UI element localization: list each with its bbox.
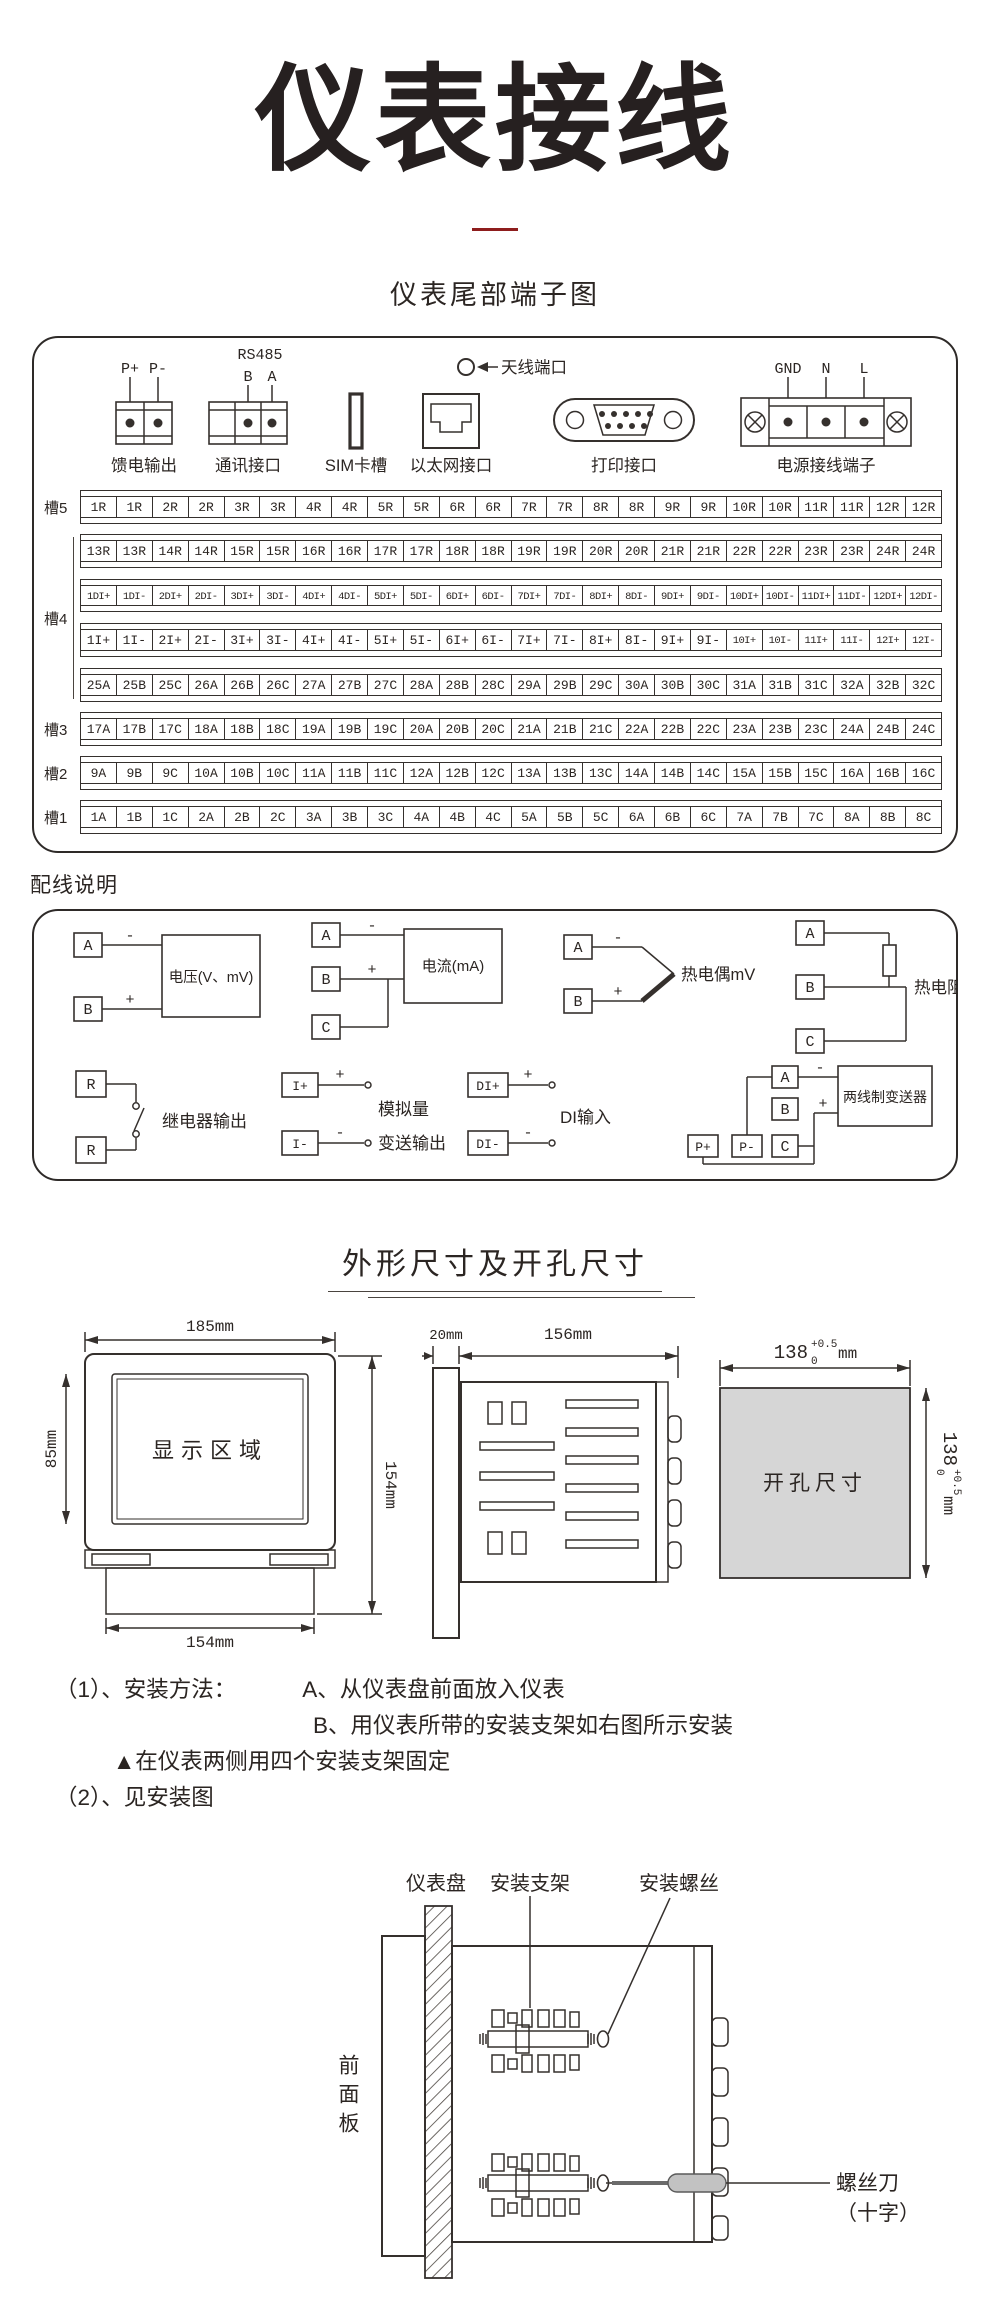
- terminal-cell: 32A: [834, 675, 870, 695]
- terminal-b: B: [780, 1102, 789, 1119]
- terminal-cell: 12C: [476, 763, 512, 783]
- dim-cutout-base: 138: [774, 1342, 808, 1364]
- terminal-cell: 8C: [906, 807, 941, 827]
- wiring-notes-title: 配线说明: [30, 869, 990, 899]
- terminal-cell: 23R: [834, 541, 870, 561]
- terminal-cell: 1R: [81, 497, 117, 517]
- thermocouple-label: 热电偶mV: [681, 965, 755, 984]
- slot-label: 槽1: [44, 807, 80, 828]
- terminal-cell: 8A: [834, 807, 870, 827]
- dim-panel-thickness: 20mm: [429, 1328, 463, 1344]
- terminal-cell: 9I-: [691, 630, 727, 650]
- current-wiring-diagram: A B C - + 电流(mA): [302, 919, 514, 1053]
- terminal-cell: 1C: [153, 807, 189, 827]
- terminal-cell: 3R: [225, 497, 261, 517]
- terminal-cell: 7DI-: [547, 586, 583, 605]
- rtd-wiring-diagram: A B C 热电阻: [786, 915, 958, 1069]
- minus-sign: -: [125, 928, 134, 945]
- front-bezel: [382, 1936, 425, 2256]
- thermocouple-wiring-diagram: A B - + 热电偶mV: [554, 927, 766, 1041]
- terminal-cell: 19C: [368, 719, 404, 739]
- terminal-cell: 19R: [547, 541, 583, 561]
- terminal-strip: 1R1R2R2R3R3R4R4R5R5R6R6R7R7R8R8R9R9R10R1…: [80, 490, 942, 524]
- screwdriver-handle: [668, 2174, 726, 2192]
- cutout-label: 开孔尺寸: [763, 1472, 867, 1495]
- terminal-cell: 30A: [619, 675, 655, 695]
- terminal-cell: 6B: [655, 807, 691, 827]
- switch-contact-icon: [133, 1103, 139, 1109]
- plus-sign: +: [125, 992, 134, 1009]
- terminal-cell: 4DI-: [332, 586, 368, 605]
- printer-label: 打印接口: [591, 456, 657, 475]
- terminal-cell: 31B: [763, 675, 799, 695]
- dim-width: 185mm: [186, 1318, 234, 1336]
- sim-slot-connector: SIM卡槽: [325, 394, 387, 475]
- terminal-cell: 29B: [547, 675, 583, 695]
- terminal-cell: 31A: [727, 675, 763, 695]
- terminal-cell: 6I-: [476, 630, 512, 650]
- terminal-diagram-subtitle: 仪表尾部端子图: [0, 273, 990, 312]
- terminal-cell: 5A: [512, 807, 548, 827]
- panel-hatch: [425, 1906, 452, 2278]
- terminal-cell: 6A: [619, 807, 655, 827]
- terminal-cell: 28B: [440, 675, 476, 695]
- terminal-cell: 1A: [81, 807, 117, 827]
- slot-label: 槽4: [44, 608, 80, 629]
- terminal-cell: 9A: [81, 763, 117, 783]
- minus-sign: -: [613, 930, 622, 947]
- sim-slot-label: SIM卡槽: [325, 456, 387, 475]
- terminal-cell: 27B: [332, 675, 368, 695]
- terminal-c: C: [805, 1034, 814, 1051]
- terminal-slot: 槽317A17B17C18A18B18C19A19B19C20A20B20C21…: [34, 707, 956, 751]
- terminal-cell: 20C: [476, 719, 512, 739]
- dim-cutout-base-v: 138: [938, 1432, 960, 1466]
- terminal-cell: 21B: [547, 719, 583, 739]
- terminal-cell: 23R: [799, 541, 835, 561]
- pin-label: B: [243, 369, 252, 386]
- slot-rows: 9A9B9C10A10B10C11A11B11C12A12B12C13A13B1…: [80, 756, 942, 790]
- terminal-cell: 22C: [691, 719, 727, 739]
- terminal-cell: 19A: [296, 719, 332, 739]
- terminal-cell: 26A: [189, 675, 225, 695]
- terminal-b: B: [573, 994, 582, 1011]
- terminal-cell: 15A: [727, 763, 763, 783]
- terminal-cell: 9B: [117, 763, 153, 783]
- terminal-cell: 8R: [583, 497, 619, 517]
- terminal-cell: 24A: [834, 719, 870, 739]
- install-line-4: （2）、见安装图: [55, 1780, 990, 1816]
- terminal-cell: 20A: [404, 719, 440, 739]
- terminal-cell: 15C: [799, 763, 835, 783]
- terminal-cell: 5C: [583, 807, 619, 827]
- voltage-label: 电压(V、mV): [169, 969, 254, 986]
- terminal-di-plus: DI+: [476, 1079, 500, 1094]
- terminal-cell: 17B: [117, 719, 153, 739]
- bracket-label: 安装支架: [490, 1872, 570, 1895]
- power-label: 电源接线端子: [777, 456, 876, 475]
- slot-rows: 13R13R14R14R15R15R16R16R17R17R18R18R19R1…: [80, 534, 942, 702]
- plus-sign: +: [335, 1067, 344, 1084]
- terminal-cell: 14R: [189, 541, 225, 561]
- terminal-cell: 3DI-: [260, 586, 296, 605]
- pin-label: P+: [121, 361, 139, 378]
- terminal-cell: 4C: [476, 807, 512, 827]
- terminal-b: B: [83, 1002, 92, 1019]
- terminal-cell: 18R: [476, 541, 512, 561]
- terminal-cell: 7B: [763, 807, 799, 827]
- terminal-cell: 3B: [332, 807, 368, 827]
- transmitter-wiring-diagram: A B C P+ P- 两线制变送器 - +: [622, 1061, 940, 1175]
- transmitter-label: 两线制变送器: [843, 1089, 927, 1105]
- panel-label: 仪表盘: [406, 1872, 466, 1895]
- terminal-cell: 10R: [763, 497, 799, 517]
- terminal-cell: 7R: [512, 497, 548, 517]
- terminal-cell: 5I-: [404, 630, 440, 650]
- terminal-cell: 16R: [332, 541, 368, 561]
- terminal-strip: 1A1B1C2A2B2C3A3B3C4A4B4C5A5B5C6A6B6C7A7B…: [80, 800, 942, 834]
- terminal-cell: 30C: [691, 675, 727, 695]
- terminal-cell: 13A: [512, 763, 548, 783]
- wiring-notes-box: A B - + 电压(V、mV) A B C - + 电流(mA) A B - …: [32, 909, 958, 1181]
- terminal-cell: 5R: [404, 497, 440, 517]
- terminal-cell: 12DI+: [870, 586, 906, 605]
- screwdriver-label: 螺丝刀: [836, 2172, 899, 2195]
- terminal-cell: 2B: [225, 807, 261, 827]
- plus-sign: +: [367, 962, 376, 979]
- terminal-cell: 8B: [870, 807, 906, 827]
- terminal-cell: 29A: [512, 675, 548, 695]
- switch-blade-icon: [134, 1108, 144, 1131]
- terminal-diagram-box: P+ P- 馈电输出 RS485 B A 通讯接口 SIM卡槽: [32, 336, 958, 853]
- terminal-cell: 32B: [870, 675, 906, 695]
- terminal-cell: 8R: [619, 497, 655, 517]
- terminal-a: A: [573, 940, 582, 957]
- terminal-cell: 25A: [81, 675, 117, 695]
- terminal-cell: 10B: [225, 763, 261, 783]
- terminal-cell: 17R: [404, 541, 440, 561]
- pin-label: A: [267, 369, 276, 386]
- rear-connectors-diagram: P+ P- 馈电输出 RS485 B A 通讯接口 SIM卡槽: [34, 342, 960, 480]
- terminal-i-plus: I+: [292, 1079, 308, 1094]
- terminal-cell: 6I+: [440, 630, 476, 650]
- terminal-cell: 11C: [368, 763, 404, 783]
- minus-sign: -: [523, 1125, 532, 1142]
- plus-sign: +: [613, 984, 622, 1001]
- install-line-2: B、用仪表所带的安装支架如右图所示安装: [313, 1708, 990, 1744]
- page-title: 仪表接线: [0, 26, 990, 194]
- terminal-cell: 12R: [870, 497, 906, 517]
- terminal-cell: 28C: [476, 675, 512, 695]
- terminal-cell: 10C: [260, 763, 296, 783]
- rs485-title: RS485: [237, 347, 282, 364]
- terminal-cell: 10I-: [763, 630, 799, 650]
- terminal-cell: 11I-: [834, 630, 870, 650]
- terminal-cell: 4I-: [332, 630, 368, 650]
- terminal-cell: 3I-: [260, 630, 296, 650]
- terminal-cell: 2DI-: [189, 586, 225, 605]
- terminal-p-plus: P+: [695, 1140, 711, 1155]
- terminal-cell: 6R: [440, 497, 476, 517]
- terminal-cell: 18B: [225, 719, 261, 739]
- terminal-cell: 16A: [834, 763, 870, 783]
- terminal-cell: 8I+: [583, 630, 619, 650]
- terminal-strips: 槽51R1R2R2R3R3R4R4R5R5R6R6R7R7R8R8R9R9R10…: [34, 485, 956, 839]
- dim-cutout-tol-plus-v: +0.5: [950, 1469, 962, 1495]
- terminal-di-minus: DI-: [476, 1137, 499, 1152]
- terminal-cell: 31C: [799, 675, 835, 695]
- terminal-cell: 13R: [117, 541, 153, 561]
- terminal-slot: 槽51R1R2R2R3R3R4R4R5R5R6R6R7R7R8R8R9R9R10…: [34, 485, 956, 529]
- switch-contact-icon: [133, 1131, 139, 1137]
- terminal-cell: 8DI-: [619, 586, 655, 605]
- terminal-cell: 20R: [619, 541, 655, 561]
- terminal-cell: 10DI+: [727, 586, 763, 605]
- terminal-cell: 5DI-: [404, 586, 440, 605]
- terminal-cell: 13C: [583, 763, 619, 783]
- terminal-slot: 槽11A1B1C2A2B2C3A3B3C4A4B4C5A5B5C6A6B6C7A…: [34, 795, 956, 839]
- comm-connector: RS485 B A 通讯接口: [209, 347, 287, 475]
- terminal-cell: 24B: [870, 719, 906, 739]
- terminal-cell: 1DI+: [81, 586, 117, 605]
- terminal-cell: 7R: [547, 497, 583, 517]
- terminal-cell: 10I+: [727, 630, 763, 650]
- terminal-cell: 23C: [799, 719, 835, 739]
- terminal-cell: 20B: [440, 719, 476, 739]
- front-view-drawing: 185mm 显示区域 85mm 154mm 154mm: [30, 1316, 410, 1648]
- terminal-p-minus: P-: [739, 1140, 755, 1155]
- antenna-port: 天线端口: [458, 358, 567, 377]
- cutout-drawing: 138 +0.5 0 mm 开孔尺寸 138 +0.5 0 mm: [710, 1316, 962, 1648]
- install-line3-note: ▲在仪表两侧用四个安装支架固定: [113, 1749, 450, 1774]
- terminal-cell: 2I-: [189, 630, 225, 650]
- terminal-cell: 12R: [906, 497, 941, 517]
- dim-cutout-unit-v: mm: [939, 1496, 957, 1515]
- terminal-cell: 23A: [727, 719, 763, 739]
- terminal-cell: 9I+: [655, 630, 691, 650]
- terminal-cell: 11B: [332, 763, 368, 783]
- rtd-label: 热电阻: [914, 978, 958, 997]
- terminal-cell: 15R: [225, 541, 261, 561]
- terminal-cell: 21R: [691, 541, 727, 561]
- pin-label: L: [859, 361, 868, 378]
- slot-label: 槽3: [44, 719, 80, 740]
- terminal-a: A: [805, 926, 814, 943]
- terminal-a: A: [321, 928, 330, 945]
- feed-output-label: 馈电输出: [111, 456, 177, 475]
- terminal-cell: 6DI-: [476, 586, 512, 605]
- terminal-cell: 12I-: [906, 630, 941, 650]
- terminal-cell: 30B: [655, 675, 691, 695]
- side-view-drawing: 20mm 156mm: [420, 1316, 700, 1648]
- slot-rows: 1A1B1C2A2B2C3A3B3C4A4B4C5A5B5C6A6B6C7A7B…: [80, 800, 942, 834]
- slot-rows: 1R1R2R2R3R3R4R4R5R5R6R6R7R7R8R8R9R9R10R1…: [80, 490, 942, 524]
- terminal-cell: 7DI+: [512, 586, 548, 605]
- terminal-cell: 4DI+: [296, 586, 332, 605]
- minus-sign: -: [335, 1125, 344, 1142]
- terminal-cell: 22A: [619, 719, 655, 739]
- terminal-cell: 11A: [296, 763, 332, 783]
- terminal-cell: 9R: [691, 497, 727, 517]
- terminal-slot: 槽29A9B9C10A10B10C11A11B11C12A12B12C13A13…: [34, 751, 956, 795]
- mounting-bracket: [480, 2010, 609, 2072]
- dim-depth: 156mm: [544, 1326, 592, 1344]
- terminal-cell: 7I+: [512, 630, 548, 650]
- resistor-icon: [883, 945, 896, 976]
- dimension-drawings: 185mm 显示区域 85mm 154mm 154mm 20mm 156mm: [0, 1316, 990, 1648]
- minus-sign: -: [367, 919, 376, 935]
- install-instructions: （1）、安装方法：A、从仪表盘前面放入仪表 B、用仪表所带的安装支架如右图所示安…: [55, 1672, 990, 1816]
- terminal-cell: 23B: [763, 719, 799, 739]
- terminal-strip: 17A17B17C18A18B18C19A19B19C20A20B20C21A2…: [80, 712, 942, 746]
- terminal-cell: 12A: [404, 763, 440, 783]
- install-line2-b: B、用仪表所带的安装支架如右图所示安装: [313, 1713, 733, 1738]
- terminal-cell: 26C: [260, 675, 296, 695]
- terminal-cell: 7C: [799, 807, 835, 827]
- terminal-cell: 8DI+: [583, 586, 619, 605]
- terminal-cell: 16R: [296, 541, 332, 561]
- terminal-a: A: [780, 1070, 789, 1087]
- terminal-cell: 6DI+: [440, 586, 476, 605]
- current-label: 电流(mA): [422, 958, 485, 975]
- terminal-cell: 28A: [404, 675, 440, 695]
- terminal-cell: 3I+: [225, 630, 261, 650]
- terminal-cell: 5R: [368, 497, 404, 517]
- terminal-cell: 17C: [153, 719, 189, 739]
- terminal-cell: 4R: [296, 497, 332, 517]
- terminal-cell: 18A: [189, 719, 225, 739]
- dim-height: 154mm: [381, 1461, 399, 1509]
- terminal-cell: 18R: [440, 541, 476, 561]
- terminal-cell: 6R: [476, 497, 512, 517]
- terminal-cell: 4I+: [296, 630, 332, 650]
- voltage-wiring-diagram: A B - + 电压(V、mV): [64, 927, 266, 1041]
- terminal-cell: 5I+: [368, 630, 404, 650]
- terminal-cell: 5DI+: [368, 586, 404, 605]
- terminal-cell: 18C: [260, 719, 296, 739]
- terminal-strip: 25A25B25C26A26B26C27A27B27C28A28B28C29A2…: [80, 668, 942, 702]
- mounting-bracket: [480, 2154, 609, 2216]
- dim-cutout-tol-plus: +0.5: [811, 1339, 837, 1351]
- terminal-a: A: [83, 938, 92, 955]
- terminal-cell: 10A: [189, 763, 225, 783]
- install-diagram: 仪表盘 安装支架 安装螺丝 螺丝刀 （十字） 前面板: [232, 1828, 932, 2285]
- terminal-cell: 6C: [691, 807, 727, 827]
- terminal-cell: 5B: [547, 807, 583, 827]
- terminal-r: R: [86, 1143, 95, 1160]
- terminal-cell: 3DI+: [225, 586, 261, 605]
- terminal-cell: 27A: [296, 675, 332, 695]
- terminal-cell: 13R: [81, 541, 117, 561]
- pin-label: P-: [149, 361, 167, 378]
- terminal-cell: 2A: [189, 807, 225, 827]
- di-label: DI输入: [560, 1108, 611, 1127]
- slot-rows: 17A17B17C18A18B18C19A19B19C20A20B20C21A2…: [80, 712, 942, 746]
- dim-cutout-tol-minus-v: 0: [933, 1469, 945, 1476]
- terminal-cell: 11DI+: [799, 586, 835, 605]
- terminal-i-minus: I-: [292, 1137, 308, 1152]
- analog-label-line2: 变送输出: [378, 1134, 446, 1153]
- terminal-cell: 7A: [727, 807, 763, 827]
- terminal-b: B: [321, 972, 330, 989]
- terminal-cell: 14C: [691, 763, 727, 783]
- install-line-1: （1）、安装方法：A、从仪表盘前面放入仪表: [55, 1672, 990, 1708]
- terminal-cell: 16B: [870, 763, 906, 783]
- terminal-cell: 14R: [153, 541, 189, 561]
- terminal-cell: 2DI+: [153, 586, 189, 605]
- install-line1-a: A、从仪表盘前面放入仪表: [302, 1677, 565, 1702]
- instrument-body: [452, 1946, 712, 2242]
- analog-label-line1: 模拟量: [378, 1100, 429, 1119]
- plus-sign: +: [523, 1067, 532, 1084]
- terminal-cell: 26B: [225, 675, 261, 695]
- dim-cutout-tol-minus: 0: [811, 1356, 818, 1368]
- feed-output-connector: P+ P- 馈电输出: [111, 361, 177, 475]
- terminal-cell: 1I-: [117, 630, 153, 650]
- antenna-circle-icon: [458, 359, 474, 375]
- dimensions-title: 外形尺寸及开孔尺寸: [328, 1239, 662, 1292]
- plus-sign: +: [818, 1096, 827, 1113]
- terminal-cell: 4A: [404, 807, 440, 827]
- terminal-cell: 22R: [727, 541, 763, 561]
- screwdriver-label-2: （十字）: [836, 2202, 920, 2225]
- terminal-cell: 1I+: [81, 630, 117, 650]
- screw-label: 安装螺丝: [639, 1872, 719, 1895]
- terminal-cell: 21A: [512, 719, 548, 739]
- terminal-cell: 2I+: [153, 630, 189, 650]
- analog-output-wiring-diagram: I+ I- + - 模拟量 变送输出: [272, 1063, 474, 1175]
- pin-label: N: [821, 361, 830, 378]
- terminal-cell: 1B: [117, 807, 153, 827]
- terminal-cell: 7I-: [547, 630, 583, 650]
- terminal-cell: 3A: [296, 807, 332, 827]
- power-connector: GND N L 电源接线端子: [741, 361, 911, 475]
- rj45-icon: [431, 404, 471, 432]
- slot-label: 槽5: [44, 497, 80, 518]
- terminal-cell: 11R: [834, 497, 870, 517]
- terminal-cell: 24R: [870, 541, 906, 561]
- terminal-cell: 1R: [117, 497, 153, 517]
- terminal-cell: 11DI-: [834, 586, 870, 605]
- terminal-cell: 11I+: [799, 630, 835, 650]
- relay-wiring-diagram: R R 继电器输出: [64, 1063, 270, 1175]
- terminal-cell: 11R: [799, 497, 835, 517]
- terminal-cell: 32C: [906, 675, 941, 695]
- install-line1-prefix: （1）、安装方法：: [55, 1677, 236, 1702]
- terminal-cell: 17A: [81, 719, 117, 739]
- terminal-cell: 15R: [260, 541, 296, 561]
- screw-leader-line: [608, 1898, 670, 2034]
- terminal-cell: 4R: [332, 497, 368, 517]
- thermocouple-icon: [642, 947, 674, 974]
- terminal-cell: 2R: [153, 497, 189, 517]
- terminal-cell: 19B: [332, 719, 368, 739]
- terminal-strip: 1I+1I-2I+2I-3I+3I-4I+4I-5I+5I-6I+6I-7I+7…: [80, 623, 942, 657]
- red-divider: [472, 228, 518, 231]
- minus-sign: -: [815, 1061, 824, 1077]
- terminal-cell: 24R: [906, 541, 941, 561]
- dim-cutout-unit: mm: [838, 1345, 857, 1363]
- terminal-strip: 9A9B9C10A10B10C11A11B11C12A12B12C13A13B1…: [80, 756, 942, 790]
- terminal-cell: 21R: [655, 541, 691, 561]
- terminal-cell: 13B: [547, 763, 583, 783]
- terminal-cell: 12I+: [870, 630, 906, 650]
- terminal-cell: 3R: [260, 497, 296, 517]
- dim-screen-height: 85mm: [43, 1430, 61, 1468]
- terminal-cell: 25C: [153, 675, 189, 695]
- terminal-cell: 8I-: [619, 630, 655, 650]
- terminal-cell: 9R: [655, 497, 691, 517]
